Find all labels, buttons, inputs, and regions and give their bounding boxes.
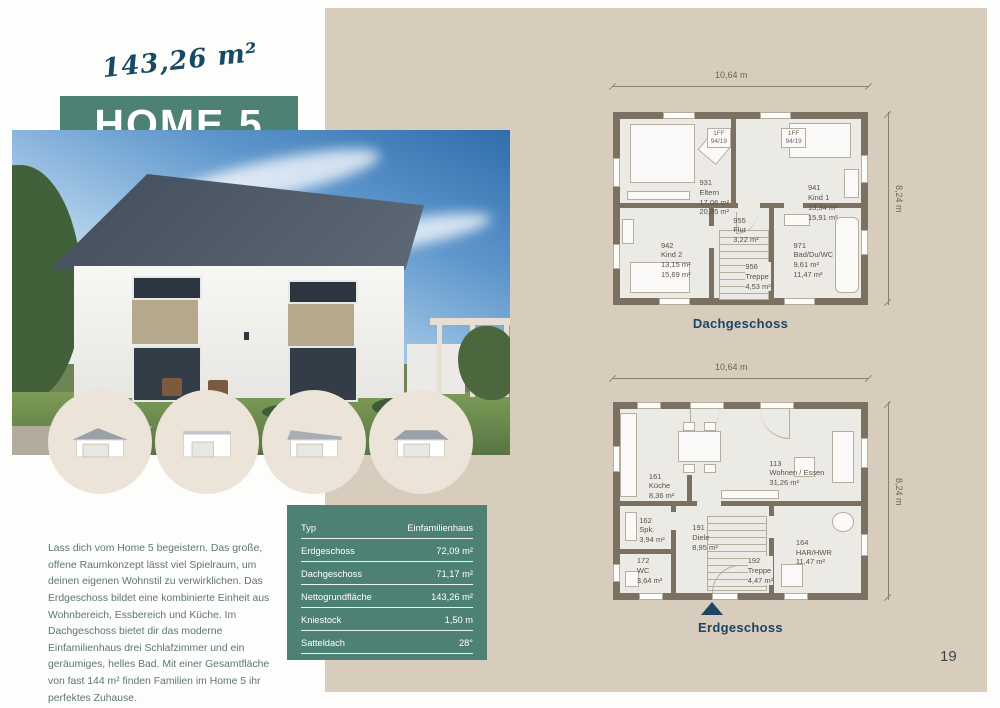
room-label-spk: 162Spk. 3,94 m² [639,516,664,545]
window-opening [639,593,663,600]
floorplan-dachgeschoss: 1FF 94/19 1FF 94/19 931Eltern 17,06 m²20… [613,112,868,305]
furniture-sink [784,214,811,227]
thumb-garage-flat-roof-icon [155,390,259,494]
room-label-kind1: 941Kind 1 13,34 m²15,91 m² [808,183,838,222]
furniture-dining-table [678,431,721,462]
door-opening [697,501,721,506]
intro-paragraph: Lass dich vom Home 5 begeistern. Das gro… [48,541,282,707]
window-opening [663,112,694,119]
wall-partition [687,475,692,501]
shutter-panel [288,304,354,348]
door-opening [671,512,676,530]
dimension-label-width-dg: 10,64 m [715,70,748,80]
window-opening [784,593,808,600]
furniture-bed [630,124,695,183]
window-opening [613,564,620,582]
spec-label: Erdgeschoss [301,546,355,556]
dimension-label-height-eg: 8,24 m [894,478,904,506]
room-label-flur: 955Flur 3,22 m² [733,216,758,245]
pergola-beam [430,318,510,325]
furniture-sofa [832,431,854,483]
wall-partition [731,119,736,203]
wall-partition [620,501,861,506]
dimension-line-height-dg [888,112,889,305]
thumb-garage-pent-roof-icon [262,390,366,494]
plan-caption-dachgeschoss: Dachgeschoss [613,316,868,331]
page-number: 19 [940,648,957,665]
plan-caption-erdgeschoss: Erdgeschoss [613,620,868,635]
spec-value: 72,09 m² [436,546,473,556]
room-label-wc: 172WC 3,64 m² [637,556,662,585]
furniture-sideboard [721,490,779,499]
entrance-marker [701,602,723,615]
dimension-label-width-eg: 10,64 m [715,362,748,372]
room-label-wohnen-essen: 113Wohnen / Essen 31,26 m² [769,459,824,488]
window-opening [861,438,868,467]
spec-label: Typ [301,523,316,533]
window-opening [613,244,620,269]
room-label-kind2: 942Kind 2 13,15 m²15,69 m² [661,241,691,280]
furniture-chair [683,464,695,473]
room-label-treppe: 192Treppe 4,47 m² [748,556,773,585]
spec-row: Nettogrundfläche 143,26 m² [301,585,473,608]
upper-window [132,276,202,300]
entrance-door-opening [712,593,739,600]
room-label-diele: 191Diele 8,95 m² [692,523,717,552]
window-opening [861,230,868,255]
furniture-bathtub [835,217,859,292]
room-label-bad: 971Bad/Du/WC 9,61 m²11,47 m² [794,241,834,280]
spec-row: Dachgeschoss 71,17 m² [301,562,473,585]
room-label-treppe: 956Treppe 4,53 m² [745,262,770,291]
window-opening [861,534,868,556]
furniture-washer [781,564,803,588]
brochure-page: 143,26 m² HOME 5 [0,0,1000,708]
area-annotation: 143,26 m² [101,38,260,84]
garden-chair [162,378,182,396]
side-building [407,344,465,394]
furniture-wardrobe [627,191,690,200]
dimension-line-width-dg [613,86,868,87]
furniture-boiler [832,512,854,532]
door-swing-arc [760,409,790,439]
garage-hip-roof-icon [389,420,453,464]
pergola-post [437,325,442,397]
specs-table: Typ Einfamilienhaus Erdgeschoss 72,09 m²… [287,505,487,660]
spec-row: Typ Einfamilienhaus [301,516,473,539]
window-opening [613,158,620,187]
door-opening [769,516,774,538]
window-spec-label: 1FF 94/19 [781,128,805,148]
room-label-har-hwr: 164HAR/HWR 11,47 m² [796,538,832,567]
spec-value: Einfamilienhaus [407,523,473,533]
spec-row: Satteldach 28° [301,631,473,654]
furniture-shelf [844,169,858,198]
floorplan-erdgeschoss: 113Wohnen / Essen 31,26 m² 161Küche 8,36… [613,402,868,600]
spec-label: Nettogrundfläche [301,592,372,602]
door-opening [709,226,714,247]
spec-label: Dachgeschoss [301,569,362,579]
room-label-kueche: 161Küche 8,36 m² [649,472,674,501]
window-spec-label: 1FF 94/19 [707,128,731,148]
window-opening [637,402,661,409]
spec-value: 143,26 m² [431,592,473,602]
window-opening [613,446,620,472]
thumb-garage-gable-roof-icon [48,390,152,494]
dimension-line-width-eg [613,378,868,379]
spec-label: Satteldach [301,638,345,648]
window-opening [861,155,868,184]
dimension-line-height-eg [888,402,889,600]
furniture-shelf [625,512,637,541]
spec-row: Erdgeschoss 72,09 m² [301,539,473,562]
garage-flat-roof-icon [175,420,239,464]
spec-value: 71,17 m² [436,569,473,579]
shutter-panel [132,300,198,344]
spec-value: 28° [459,638,473,648]
furniture-chair [683,422,695,431]
spec-row: Kniestock 1,50 m [301,608,473,631]
window-opening [784,298,815,305]
patio-door-opening [690,402,724,409]
furniture-chair [704,464,716,473]
thumb-garage-hip-roof-icon [369,390,473,494]
wall-partition [709,203,714,298]
spec-label: Kniestock [301,615,341,625]
wall-lamp [244,332,249,340]
wall-partition [620,549,671,554]
spec-value: 1,50 m [445,615,473,625]
furniture-desk [622,219,634,244]
dimension-label-height-dg: 8,24 m [894,185,904,213]
door-opening [738,203,760,208]
room-label-eltern: 931Eltern 17,06 m²20,35 m² [700,178,730,217]
furniture-chair [704,422,716,431]
furniture-kitchen-counter [620,413,637,498]
window-opening [659,298,690,305]
garage-gable-roof-icon [68,420,132,464]
garage-pent-roof-icon [282,420,346,464]
patio-door-opening [760,402,794,409]
upper-window [288,280,358,304]
door-opening [784,203,803,208]
window-opening [760,112,791,119]
